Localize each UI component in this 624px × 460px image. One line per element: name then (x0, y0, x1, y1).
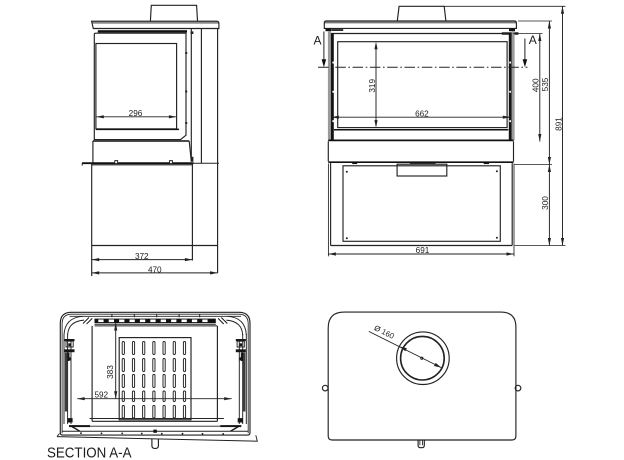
svg-text:383: 383 (106, 365, 115, 379)
svg-text:891: 891 (554, 117, 563, 131)
svg-text:470: 470 (148, 265, 162, 274)
svg-text:296: 296 (129, 109, 143, 118)
svg-text:662: 662 (415, 109, 429, 118)
svg-text:372: 372 (135, 252, 149, 261)
svg-text:535: 535 (541, 77, 550, 91)
svg-text:A: A (529, 33, 537, 47)
svg-text:A: A (314, 34, 322, 48)
svg-text:300: 300 (541, 196, 550, 210)
svg-text:691: 691 (416, 246, 430, 255)
svg-text:319: 319 (368, 79, 377, 93)
svg-text:400: 400 (532, 78, 541, 92)
svg-text:SECTION A-A: SECTION A-A (47, 445, 132, 460)
svg-text:592: 592 (94, 390, 108, 399)
